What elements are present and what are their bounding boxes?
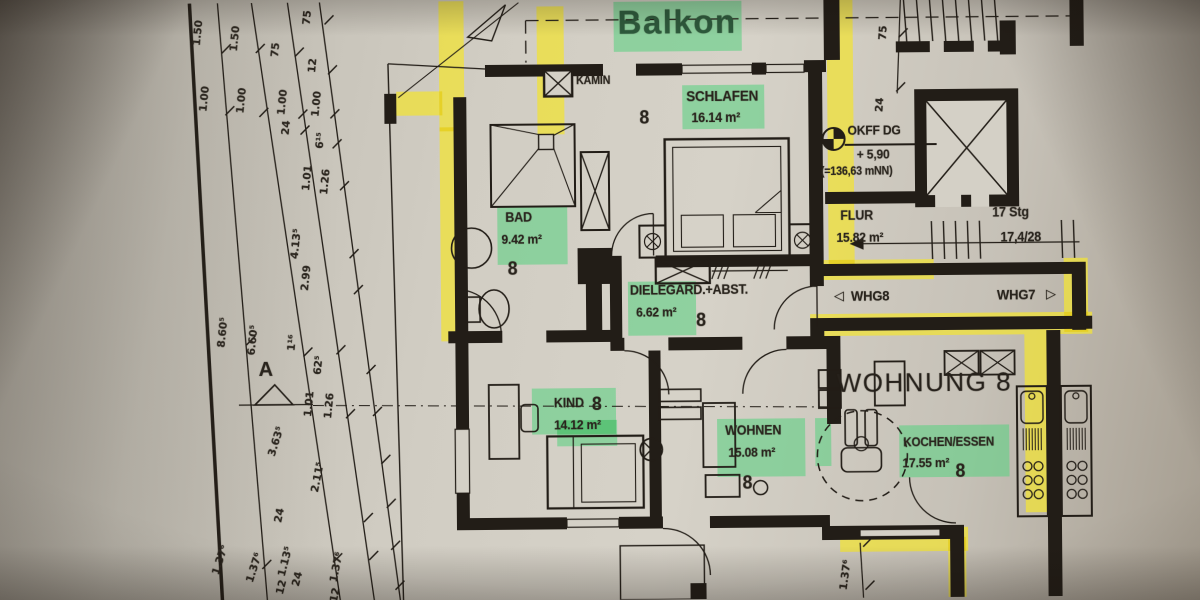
dimension-label: 1.00 bbox=[197, 85, 211, 112]
level-marker-line2: + 5,90 bbox=[857, 146, 890, 161]
apartment-number-stamp: 8 bbox=[955, 461, 965, 483]
room-area-schlafen: 16.14 m² bbox=[691, 110, 740, 125]
dimension-label: 24 bbox=[290, 570, 305, 587]
apartment-number-stamp: 8 bbox=[639, 108, 649, 130]
room-name-kind: KIND bbox=[554, 395, 584, 410]
dimension-label: 8.60⁵ bbox=[215, 317, 230, 349]
dimension-label: 1.37⁶ bbox=[210, 544, 231, 577]
plan-labels: Balkon KAMIN SCHLAFEN 16.14 m² OKFF DG +… bbox=[0, 0, 1200, 600]
kamin-label: KAMIN bbox=[576, 75, 610, 87]
dimension-label: 12 bbox=[274, 579, 289, 596]
room-area-flur: 15.82 m² bbox=[836, 230, 883, 245]
dimension-label: 1.37⁶ bbox=[328, 551, 346, 583]
dimension-label: 75 bbox=[877, 25, 890, 40]
room-name-schlafen: SCHLAFEN bbox=[686, 89, 758, 106]
plan-drawing: Balkon KAMIN SCHLAFEN 16.14 m² OKFF DG +… bbox=[0, 0, 1200, 600]
dimension-label: 1.50 bbox=[228, 25, 242, 52]
room-name-wohnen: WOHNEN bbox=[725, 422, 781, 437]
stairs-note-line2: 17,4/28 bbox=[1000, 229, 1041, 244]
dimension-label: 4.13⁵ bbox=[289, 228, 304, 260]
room-name-kochen: KOCHEN/ESSEN bbox=[903, 435, 994, 450]
level-marker-line1: OKFF DG bbox=[847, 122, 900, 137]
dimension-label: 62⁵ bbox=[312, 355, 326, 375]
dimension-label: 12 bbox=[306, 58, 319, 74]
whg8-label: WHG8 bbox=[851, 287, 889, 303]
room-name-flur: FLUR bbox=[840, 208, 873, 223]
room-name-bad: BAD bbox=[505, 210, 532, 225]
floor-plan-photo: Balkon KAMIN SCHLAFEN 16.14 m² OKFF DG +… bbox=[0, 0, 1200, 600]
whg7-label: WHG7 bbox=[997, 286, 1035, 302]
dimension-label: 75 bbox=[301, 10, 314, 26]
dimension-label: 75 bbox=[269, 42, 282, 58]
dimension-label: 6¹⁵ bbox=[314, 132, 328, 150]
room-area-wohnen: 15.08 m² bbox=[728, 444, 775, 459]
dimension-label: 1.50 bbox=[191, 20, 205, 47]
apartment-number-stamp: 8 bbox=[743, 473, 753, 495]
apartment-number-stamp: 8 bbox=[696, 310, 706, 332]
dimension-label: 1.26 bbox=[322, 392, 336, 419]
room-area-diele: 6.62 m² bbox=[636, 304, 676, 319]
dimension-label: 24 bbox=[272, 507, 287, 524]
gard-abst-label: GARD.+ABST. bbox=[666, 282, 748, 298]
apartment-number-stamp: 8 bbox=[592, 394, 602, 416]
whg8-arrow-icon: ◁ bbox=[834, 289, 844, 304]
dimension-label: 1.37⁶ bbox=[244, 551, 265, 584]
dimension-label: 12 bbox=[328, 587, 343, 600]
dimension-label: 1.37⁶ bbox=[838, 559, 854, 591]
section-marker-letter: A bbox=[259, 359, 273, 382]
dimension-label: 24 bbox=[280, 120, 293, 136]
dimension-label: 1¹⁶ bbox=[285, 334, 299, 352]
dimension-label: 1.00 bbox=[275, 89, 289, 116]
room-name-diele: DIELE bbox=[630, 282, 666, 297]
room-area-bad: 9.42 m² bbox=[501, 232, 541, 247]
dimension-label: 1.26 bbox=[318, 168, 332, 195]
apartment-number-stamp: 8 bbox=[508, 259, 518, 281]
stairs-note-line1: 17 Stg bbox=[992, 204, 1029, 219]
dimension-label: 6.60⁵ bbox=[246, 324, 261, 356]
dimension-label: 2.99 bbox=[299, 265, 313, 292]
wohnung-8-label: WOHNUNG 8 bbox=[837, 366, 1013, 399]
room-area-kochen: 17.55 m² bbox=[902, 455, 949, 470]
balkon-label: Balkon bbox=[617, 3, 736, 42]
whg7-arrow-icon: ▷ bbox=[1046, 287, 1056, 302]
dimension-label: 1.00 bbox=[234, 87, 248, 114]
dimension-label: 24 bbox=[873, 97, 886, 112]
dimension-label: 2.11⁵ bbox=[309, 461, 327, 493]
room-area-kind: 14.12 m² bbox=[554, 417, 601, 432]
dimension-label: 1.01 bbox=[302, 391, 316, 418]
dimension-label: 1.00 bbox=[309, 90, 323, 117]
dimension-label: 3.63⁵ bbox=[266, 425, 287, 458]
level-marker-line3: (=136,63 mNN) bbox=[821, 165, 893, 178]
dimension-label: 1.01 bbox=[300, 165, 314, 192]
